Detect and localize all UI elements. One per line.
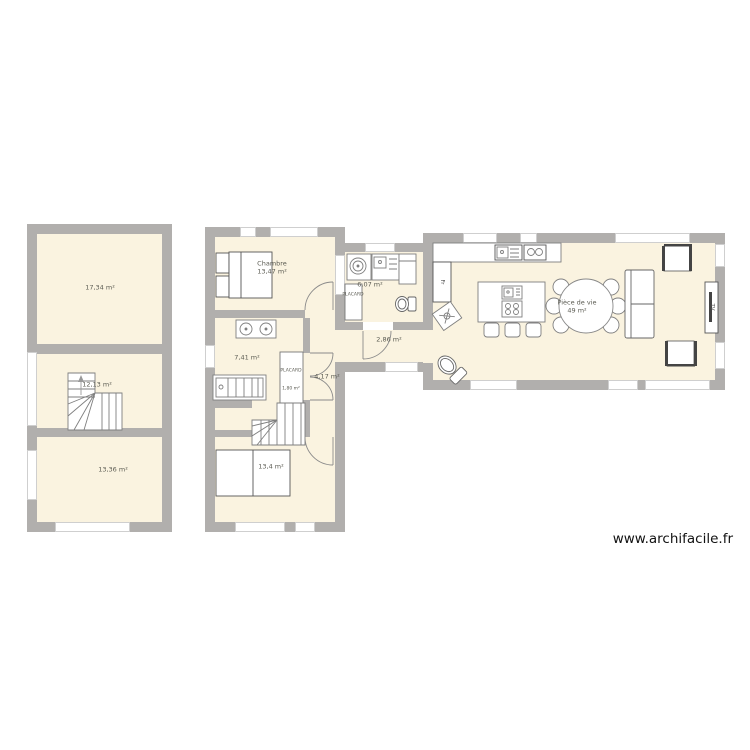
- bathtub-icon[interactable]: [213, 375, 266, 400]
- floor-plan-canvas: 17,34 m² 12,13 m² 13,36 m² Chambre 13,47…: [0, 0, 750, 750]
- bed-icon[interactable]: [216, 450, 290, 496]
- door-arc-icon[interactable]: [305, 282, 333, 310]
- toilet-icon[interactable]: [434, 352, 467, 385]
- room-label: 13,36 m²: [98, 467, 128, 474]
- room-label: 13,47 m²: [257, 269, 287, 276]
- sofa-icon[interactable]: [625, 270, 654, 338]
- room-label: 2,86 m²: [376, 337, 401, 344]
- room-label: 6,07 m²: [357, 282, 382, 289]
- prep-sink-icon[interactable]: [432, 301, 461, 330]
- armchair-icon[interactable]: [662, 244, 692, 271]
- toilet-icon[interactable]: [396, 297, 417, 312]
- room-label: 49 m²: [567, 308, 586, 315]
- room-label: 4,17 m²: [314, 374, 339, 381]
- hotplate-icon[interactable]: [347, 254, 371, 280]
- sink-icon[interactable]: [372, 254, 399, 280]
- stairs-icon[interactable]: [252, 403, 305, 445]
- fridge-icon[interactable]: [399, 254, 416, 284]
- room-name-label: Pièce de vie: [557, 300, 596, 307]
- room-label: 1,80 m²: [282, 387, 300, 392]
- sink-icon[interactable]: [495, 245, 522, 260]
- room-label: 17,34 m²: [85, 285, 115, 292]
- tv-label: TV: [709, 303, 715, 310]
- armchair-icon[interactable]: [665, 341, 697, 367]
- room-label: 13,4 m²: [258, 464, 283, 471]
- room-label: 12,13 m²: [82, 382, 112, 389]
- placard-closet[interactable]: [280, 352, 303, 403]
- placard-closet[interactable]: [345, 284, 362, 320]
- watermark: www.archifacile.fr: [613, 531, 733, 547]
- fridge-label: Fr: [439, 279, 445, 284]
- door-arc-icon[interactable]: [305, 437, 333, 465]
- chair-icon[interactable]: [484, 323, 541, 337]
- room-name-label: PLACARD: [280, 369, 301, 374]
- hob-icon[interactable]: [524, 245, 546, 260]
- room-label: 7,41 m²: [234, 355, 259, 362]
- double-washbasin-icon[interactable]: [236, 320, 276, 338]
- kitchen-island[interactable]: [478, 282, 545, 322]
- room-name-label: Chambre: [257, 261, 287, 268]
- room-name-label: PLACARD: [342, 293, 363, 298]
